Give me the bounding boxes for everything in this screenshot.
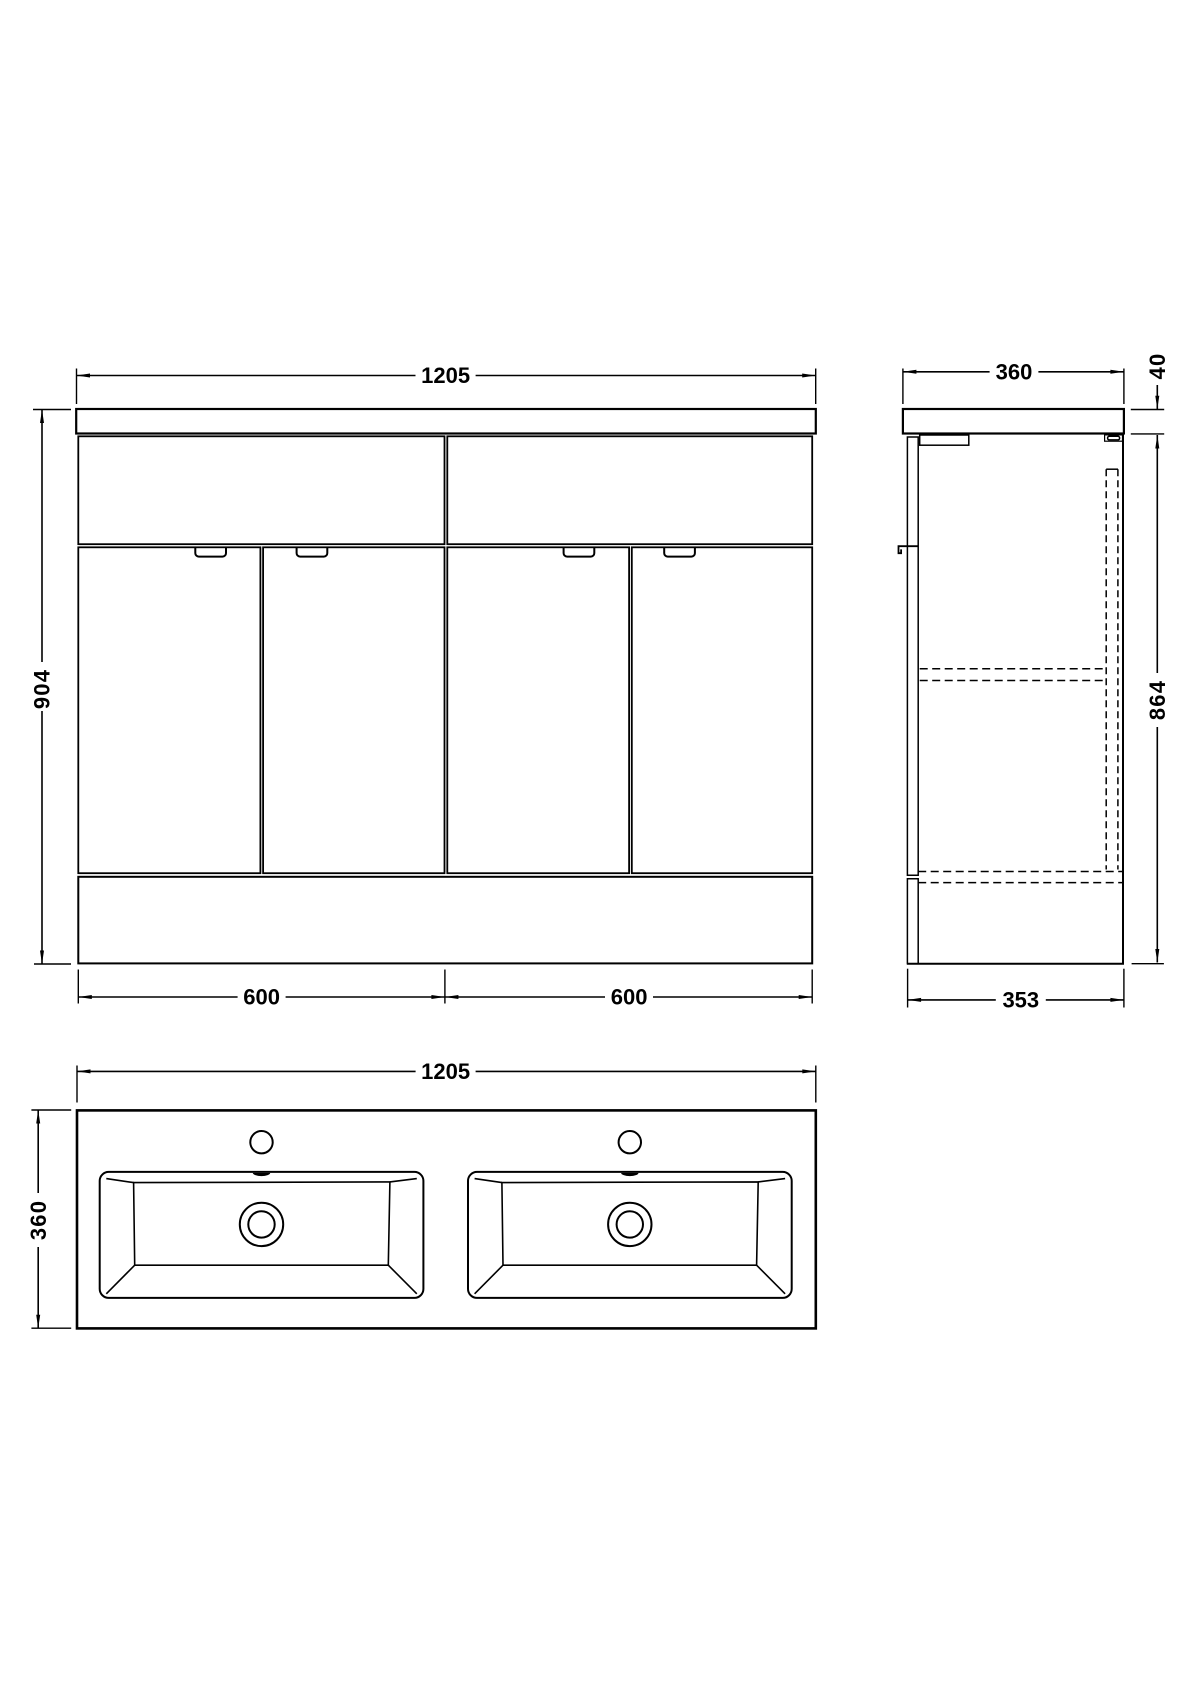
svg-text:353: 353	[1002, 988, 1039, 1013]
svg-text:864: 864	[1145, 680, 1170, 720]
svg-text:360: 360	[26, 1200, 51, 1240]
svg-text:600: 600	[243, 985, 280, 1010]
svg-text:600: 600	[611, 985, 648, 1010]
svg-text:904: 904	[30, 669, 55, 709]
svg-text:1205: 1205	[421, 363, 470, 388]
svg-text:40: 40	[1145, 353, 1170, 380]
svg-text:360: 360	[996, 360, 1033, 385]
svg-text:1205: 1205	[421, 1059, 470, 1084]
